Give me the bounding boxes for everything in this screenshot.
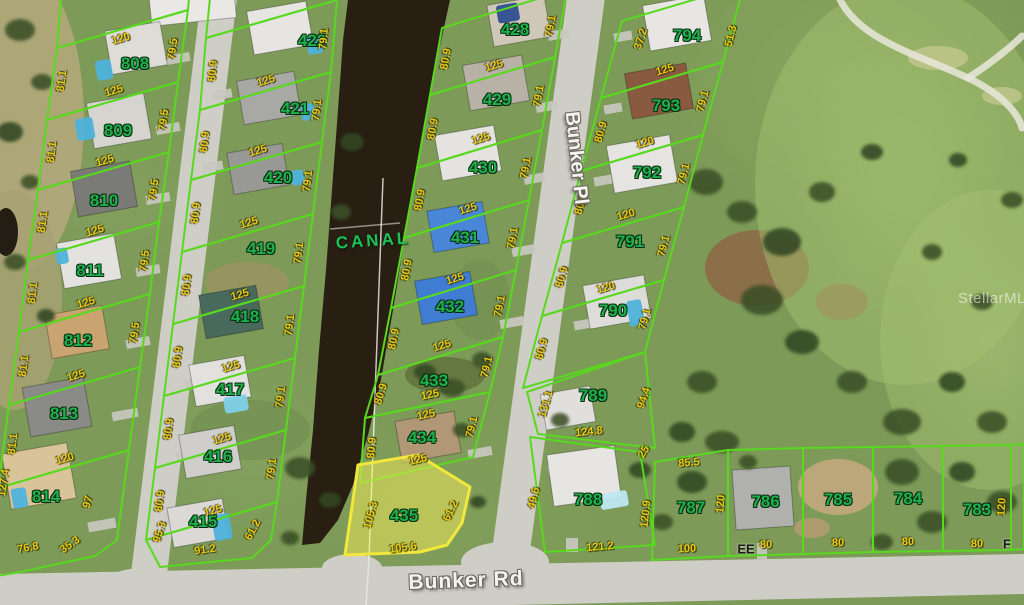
- tree: [939, 372, 965, 392]
- driveway: [757, 543, 767, 559]
- tree: [669, 422, 695, 442]
- tree: [285, 457, 315, 479]
- tree: [871, 534, 893, 550]
- tree: [861, 144, 883, 160]
- tree: [987, 491, 1017, 513]
- tree: [727, 201, 757, 223]
- tree: [741, 285, 783, 315]
- tree: [949, 153, 967, 167]
- tree: [922, 244, 942, 260]
- tree: [689, 169, 723, 195]
- tree: [470, 496, 486, 508]
- street-label-bunker-rd: Bunker Rd: [408, 567, 524, 595]
- tree: [837, 371, 867, 393]
- pool: [74, 117, 96, 142]
- tree: [739, 455, 757, 469]
- house-roof: [22, 377, 92, 437]
- pool: [290, 169, 305, 186]
- pool: [94, 59, 113, 81]
- tree: [439, 379, 465, 397]
- house-roof: [237, 71, 302, 124]
- tree: [453, 423, 471, 437]
- driveway: [155, 122, 180, 135]
- tree: [37, 309, 55, 323]
- driveway: [87, 518, 116, 533]
- tree: [4, 254, 26, 270]
- watermark-stellar-mls: StellarMLS: [958, 290, 1024, 307]
- tree: [977, 411, 1007, 433]
- plat-map: 80881.112579.512080981.112579.581081.112…: [0, 0, 1024, 605]
- house-roof: [642, 0, 711, 51]
- house-roof: [624, 63, 693, 119]
- house-roof: [606, 135, 677, 193]
- house-roof: [105, 21, 168, 74]
- terrain-patch: [798, 459, 878, 515]
- tree: [785, 330, 819, 354]
- driveway: [135, 264, 160, 277]
- tree: [31, 74, 53, 90]
- tree: [885, 459, 919, 485]
- tree: [1001, 192, 1023, 208]
- house-roof: [45, 305, 110, 358]
- tree: [340, 133, 364, 151]
- tree: [5, 19, 35, 41]
- house-roof: [427, 201, 489, 252]
- tree: [551, 413, 569, 427]
- highlighted-lot-boundary-435: [345, 455, 470, 555]
- driveway: [125, 336, 150, 349]
- terrain-patch: [794, 518, 830, 538]
- driveway: [145, 192, 170, 205]
- driveway: [603, 103, 622, 115]
- house-roof: [70, 161, 137, 217]
- lot-boundary-787: [652, 450, 728, 560]
- tree: [949, 462, 975, 482]
- house-roof: [227, 143, 289, 194]
- tree: [331, 204, 351, 220]
- tree: [281, 531, 299, 545]
- tree: [21, 175, 39, 189]
- tree: [677, 471, 707, 493]
- tree: [472, 352, 492, 368]
- house-roof: [487, 0, 551, 47]
- road-surface: [322, 554, 382, 582]
- pool: [306, 35, 324, 55]
- tree: [629, 462, 651, 478]
- house-roof: [86, 93, 151, 148]
- house-roof: [199, 285, 264, 338]
- tree: [883, 409, 921, 435]
- tree: [809, 182, 835, 202]
- pool: [300, 103, 317, 121]
- tree: [414, 364, 436, 380]
- house-roof: [732, 466, 794, 530]
- driveway: [165, 52, 190, 65]
- tree: [319, 492, 341, 508]
- driveway: [593, 175, 612, 187]
- house-roof: [395, 411, 461, 463]
- tree: [687, 371, 717, 393]
- road-surface: [103, 568, 183, 604]
- map-graphics: [0, 0, 1024, 605]
- tree: [763, 228, 801, 256]
